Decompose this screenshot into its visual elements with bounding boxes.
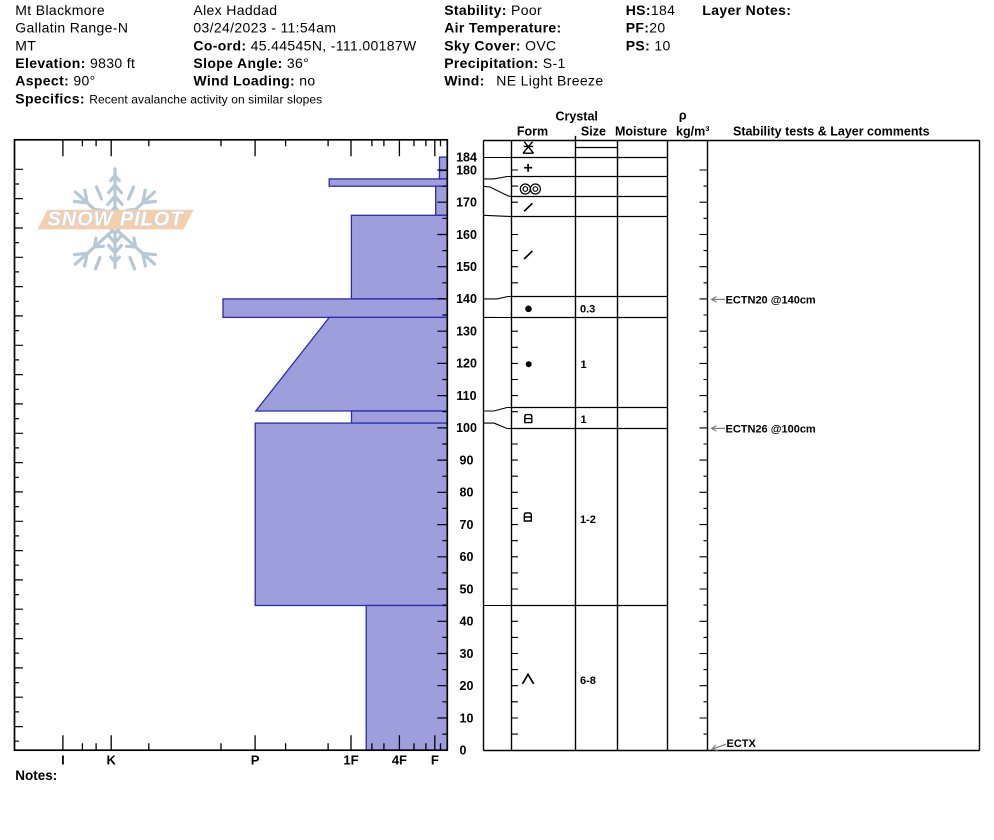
svg-text:Gallatin Range-N: Gallatin Range-N <box>15 20 128 36</box>
svg-text:0.3: 0.3 <box>580 304 595 316</box>
svg-text:180: 180 <box>456 163 477 177</box>
svg-text:MT: MT <box>15 37 36 53</box>
svg-text:60: 60 <box>460 550 474 564</box>
svg-text:PS: 10: PS: 10 <box>626 37 671 53</box>
svg-text:Mt Blackmore: Mt Blackmore <box>15 2 105 18</box>
svg-text:Co-ord: 45.44545N, -111.00187W: Co-ord: 45.44545N, -111.00187W <box>193 37 417 53</box>
svg-text:ECTX: ECTX <box>727 738 757 750</box>
svg-text:0: 0 <box>460 744 467 758</box>
svg-text:Aspect: 90°: Aspect: 90° <box>15 73 95 89</box>
svg-text:SNOW PILOT: SNOW PILOT <box>48 209 185 231</box>
svg-text:110: 110 <box>456 389 476 403</box>
svg-text:1: 1 <box>581 414 587 426</box>
svg-text:140: 140 <box>456 292 477 306</box>
svg-text:Stability tests & Layer commen: Stability tests & Layer comments <box>733 125 930 139</box>
svg-text:90: 90 <box>460 453 474 467</box>
svg-text:Precipitation: S-1: Precipitation: S-1 <box>444 55 565 71</box>
svg-text:Elevation: 9830 ft: Elevation: 9830 ft <box>15 55 135 71</box>
svg-text:ECTN20 @140cm: ECTN20 @140cm <box>726 294 816 306</box>
svg-text:130: 130 <box>456 325 477 339</box>
svg-text:Alex Haddad: Alex Haddad <box>193 2 277 18</box>
svg-text:Air Temperature:: Air Temperature: <box>444 20 561 36</box>
svg-text:160: 160 <box>456 228 477 242</box>
svg-text:40: 40 <box>460 615 474 629</box>
svg-text:80: 80 <box>460 486 474 500</box>
svg-text:Size: Size <box>581 125 606 139</box>
svg-text:ρ: ρ <box>679 109 687 123</box>
svg-text:Layer Notes:: Layer Notes: <box>702 2 791 18</box>
svg-text:Slope Angle: 36°: Slope Angle: 36° <box>193 55 309 71</box>
svg-text:P: P <box>251 753 260 768</box>
svg-text:Crystal: Crystal <box>556 110 598 124</box>
svg-text:6-8: 6-8 <box>580 675 596 687</box>
svg-text:120: 120 <box>456 357 477 371</box>
svg-text:Form: Form <box>517 125 548 139</box>
svg-text:Wind: NE Light Breeze: Wind: NE Light Breeze <box>444 73 603 89</box>
svg-text:50: 50 <box>460 582 474 596</box>
svg-text:1-2: 1-2 <box>580 514 596 526</box>
svg-text:20: 20 <box>460 679 474 693</box>
svg-text:HS:184: HS:184 <box>626 2 676 18</box>
svg-text:ECTN26 @100cm: ECTN26 @100cm <box>726 423 816 435</box>
svg-text:Specifics: Recent avalanche ac: Specifics: Recent avalanche activity on … <box>15 90 322 106</box>
svg-text:Sky Cover: OVC: Sky Cover: OVC <box>444 37 556 53</box>
svg-text:Stability: Poor: Stability: Poor <box>444 2 542 18</box>
svg-text:10: 10 <box>460 711 474 725</box>
svg-text:1: 1 <box>581 359 587 371</box>
svg-text:03/24/2023 - 11:54am: 03/24/2023 - 11:54am <box>193 20 336 36</box>
svg-text:kg/m³: kg/m³ <box>676 125 709 139</box>
svg-text:I: I <box>61 753 65 768</box>
svg-text:Notes:: Notes: <box>15 768 57 783</box>
svg-text:100: 100 <box>456 421 477 435</box>
svg-text:PF:20: PF:20 <box>626 20 666 36</box>
svg-text:150: 150 <box>456 260 477 274</box>
svg-text:F: F <box>431 753 439 768</box>
svg-text:4F: 4F <box>392 753 407 768</box>
svg-text:Wind Loading: no: Wind Loading: no <box>193 73 315 89</box>
svg-text:Moisture: Moisture <box>615 125 667 139</box>
svg-text:170: 170 <box>456 196 477 210</box>
svg-text:70: 70 <box>460 518 474 532</box>
svg-text:1F: 1F <box>343 753 358 768</box>
svg-text:K: K <box>107 753 117 768</box>
svg-text:30: 30 <box>460 647 474 661</box>
